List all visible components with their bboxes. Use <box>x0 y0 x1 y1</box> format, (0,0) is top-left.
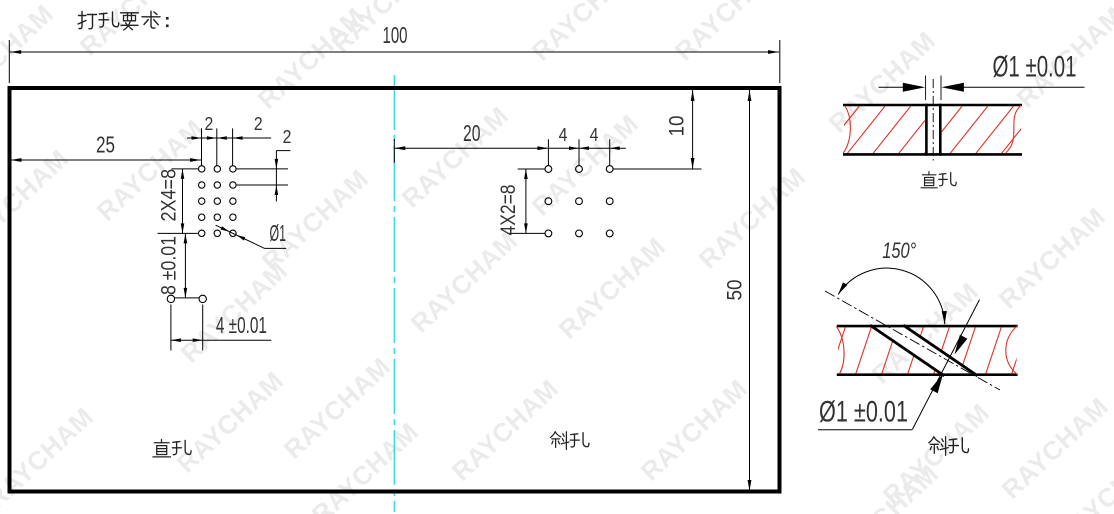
svg-text:RAYCHAM: RAYCHAM <box>635 373 753 486</box>
svg-text:RAYCHAM: RAYCHAM <box>405 225 523 338</box>
svg-text:100: 100 <box>383 22 408 48</box>
svg-text:4 ±0.01: 4 ±0.01 <box>216 312 267 338</box>
svg-text:Ø1 ±0.01: Ø1 ±0.01 <box>993 51 1077 84</box>
svg-text:4: 4 <box>590 125 599 145</box>
svg-text:2: 2 <box>283 127 292 147</box>
svg-text:RAYCHAM: RAYCHAM <box>252 1 370 114</box>
svg-text:Ø1: Ø1 <box>270 220 287 246</box>
svg-text:Ø1 ±0.01: Ø1 ±0.01 <box>819 396 908 429</box>
svg-text:RAYCHAM: RAYCHAM <box>0 401 99 514</box>
svg-text:4X2=8: 4X2=8 <box>497 185 520 236</box>
svg-text:RAYCHAM: RAYCHAM <box>91 113 209 226</box>
svg-text:2: 2 <box>254 114 263 134</box>
svg-text:10: 10 <box>666 116 689 137</box>
svg-text:RAYCHAM: RAYCHAM <box>526 0 644 67</box>
svg-text:RAYCHAM: RAYCHAM <box>993 201 1111 314</box>
svg-text:50: 50 <box>724 280 747 301</box>
svg-text:25: 25 <box>96 132 115 158</box>
svg-text:RAYCHAM: RAYCHAM <box>171 365 289 478</box>
svg-text:RAYCHAM: RAYCHAM <box>526 108 644 221</box>
svg-text:2X4=8: 2X4=8 <box>157 169 180 222</box>
svg-text:RAYCHAM: RAYCHAM <box>553 231 671 344</box>
svg-text:RAYCHAM: RAYCHAM <box>446 373 564 486</box>
svg-text:RAYCHAM: RAYCHAM <box>669 0 787 67</box>
svg-text:150°: 150° <box>882 238 916 263</box>
svg-text:RAYCHAM: RAYCHAM <box>693 161 811 274</box>
svg-text:4: 4 <box>559 125 568 145</box>
svg-text:2: 2 <box>205 114 214 134</box>
svg-text:20: 20 <box>463 120 481 146</box>
svg-text:8 ±0.01: 8 ±0.01 <box>157 236 180 295</box>
